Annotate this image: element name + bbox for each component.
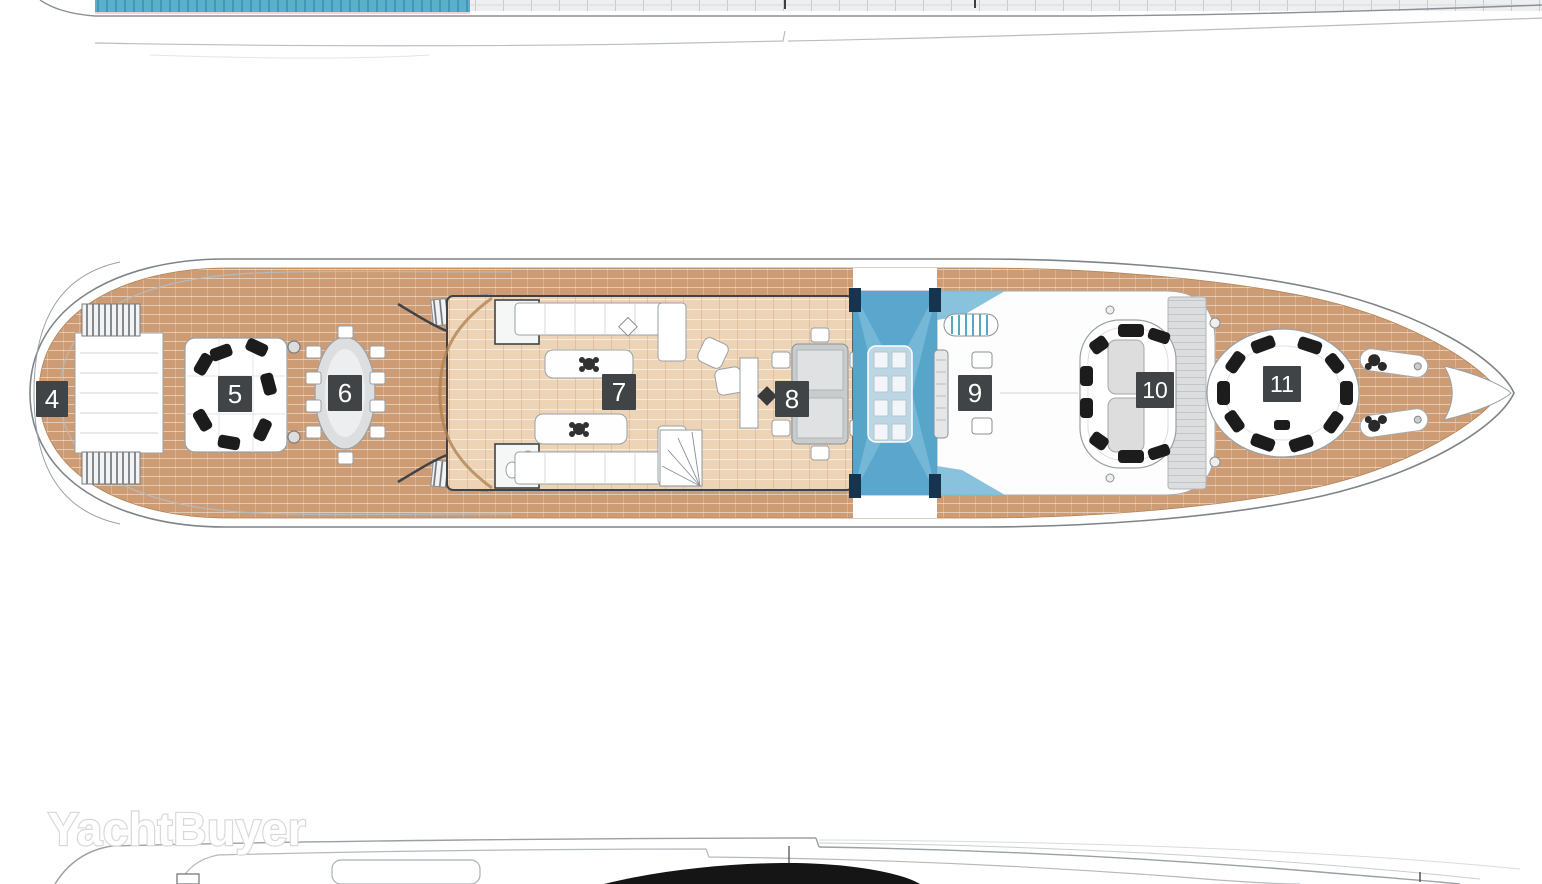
deck-area-marker-5: 5 <box>218 376 252 412</box>
deck-area-marker-10: 10 <box>1136 372 1174 408</box>
helm-seat <box>972 418 992 434</box>
deck-plan-drawing: YachtBuyer <box>0 0 1542 884</box>
watermark: YachtBuyer <box>48 803 306 855</box>
salon-stairs <box>660 430 702 486</box>
deck-area-marker-4: 4 <box>36 381 68 417</box>
stern-stairs-port <box>82 304 140 336</box>
stern-stairs-starboard <box>82 452 140 484</box>
helm-console <box>934 350 948 438</box>
yacht-deck-plan-page: YachtBuyer 4 5 6 7 8 9 10 11 <box>0 0 1542 884</box>
sun-deck-partial <box>40 0 1542 58</box>
sun-deck-planking <box>470 0 1542 11</box>
lower-deck-hardtop <box>604 863 920 884</box>
deck-area-marker-9: 9 <box>958 375 992 411</box>
sun-deck-overhang-line <box>95 31 785 46</box>
sun-deck-pool <box>95 0 470 12</box>
deck-area-marker-6: 6 <box>328 375 362 411</box>
deck-area-marker-7: 7 <box>602 374 636 410</box>
deck-area-marker-11: 11 <box>1263 366 1301 402</box>
deck-area-marker-8: 8 <box>775 381 809 417</box>
helm-seat <box>972 352 992 368</box>
